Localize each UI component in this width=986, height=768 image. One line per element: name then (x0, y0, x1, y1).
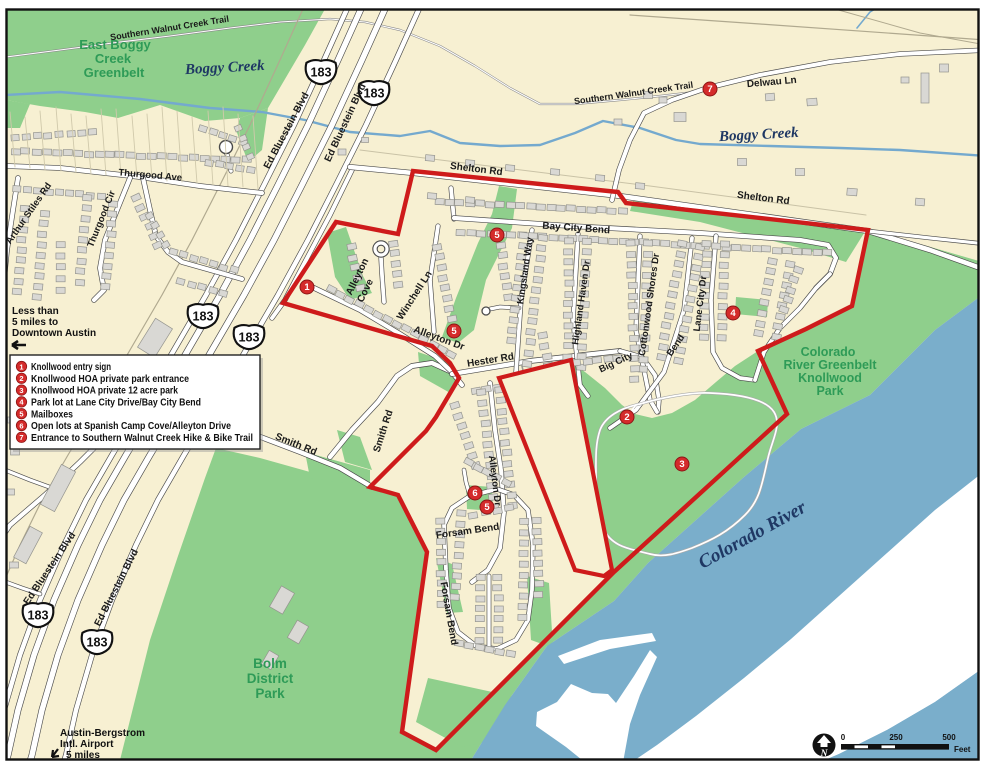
svg-text:500: 500 (942, 733, 956, 742)
svg-text:Creek: Creek (95, 51, 132, 66)
svg-text:2: 2 (19, 374, 23, 383)
svg-text:183: 183 (86, 635, 107, 649)
svg-text:Feet: Feet (954, 745, 971, 754)
svg-text:Colorado: Colorado (801, 345, 856, 359)
svg-text:Downtown Austin: Downtown Austin (12, 328, 96, 339)
svg-text:N: N (820, 749, 829, 759)
svg-text:Open lots at Spanish Camp Cove: Open lots at Spanish Camp Cove/Alleyton … (31, 421, 231, 432)
svg-text:5: 5 (484, 502, 490, 513)
svg-text:Knollwood: Knollwood (798, 371, 862, 385)
svg-text:250: 250 (889, 733, 903, 742)
svg-text:5 miles to: 5 miles to (12, 317, 58, 328)
svg-text:Greenbelt: Greenbelt (84, 65, 145, 80)
svg-text:Mailboxes: Mailboxes (31, 409, 73, 420)
svg-text:Knollwood HOA private park ent: Knollwood HOA private park entrance (31, 374, 189, 385)
svg-text:1: 1 (304, 282, 310, 293)
svg-text:3: 3 (679, 459, 684, 470)
svg-text:183: 183 (192, 309, 213, 323)
svg-text:Park: Park (816, 384, 843, 398)
svg-text:Austin-Bergstrom: Austin-Bergstrom (60, 728, 145, 739)
svg-text:Knollwood HOA private 12 acre: Knollwood HOA private 12 acre park (31, 386, 178, 397)
svg-text:183: 183 (310, 65, 331, 79)
svg-text:Bolm: Bolm (253, 656, 287, 671)
svg-text:5: 5 (19, 410, 23, 419)
svg-text:Knollwood entry sign: Knollwood entry sign (31, 362, 111, 373)
svg-text:183: 183 (238, 330, 259, 344)
svg-text:1: 1 (19, 362, 23, 371)
svg-text:6: 6 (19, 421, 23, 430)
svg-text:3: 3 (19, 386, 23, 395)
svg-text:7: 7 (707, 84, 712, 95)
svg-text:River Greenbelt: River Greenbelt (783, 358, 877, 372)
svg-text:4: 4 (730, 308, 736, 319)
svg-text:5: 5 (494, 230, 500, 241)
svg-text:Park lot at Lane City Drive/Ba: Park lot at Lane City Drive/Bay City Ben… (31, 398, 201, 409)
svg-text:Entrance to Southern Walnut Cr: Entrance to Southern Walnut Creek Hike &… (31, 433, 253, 444)
svg-text:District: District (247, 671, 294, 686)
svg-text:East Boggy: East Boggy (79, 37, 151, 52)
svg-text:5: 5 (451, 326, 457, 337)
svg-text:183: 183 (27, 608, 48, 622)
svg-text:Intl. Airport: Intl. Airport (60, 739, 114, 750)
svg-text:Less than: Less than (12, 306, 59, 317)
svg-text:0: 0 (841, 733, 846, 742)
svg-text:Park: Park (255, 686, 285, 701)
svg-text:6: 6 (472, 488, 477, 499)
svg-text:7: 7 (19, 433, 23, 442)
svg-text:2: 2 (624, 412, 629, 423)
